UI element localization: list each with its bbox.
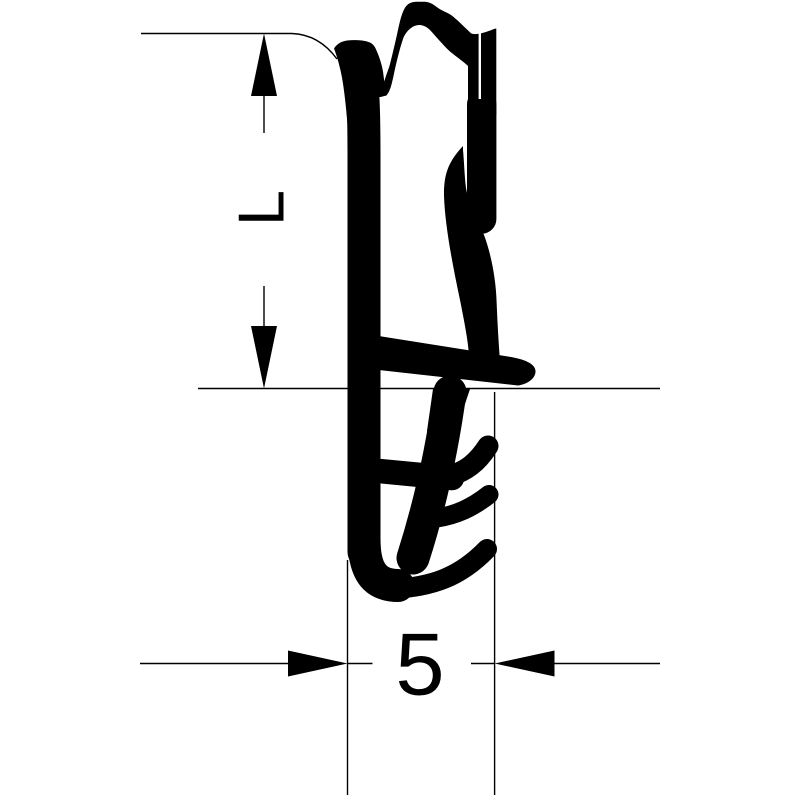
svg-text:5: 5	[395, 615, 444, 714]
svg-text:L: L	[225, 190, 298, 226]
